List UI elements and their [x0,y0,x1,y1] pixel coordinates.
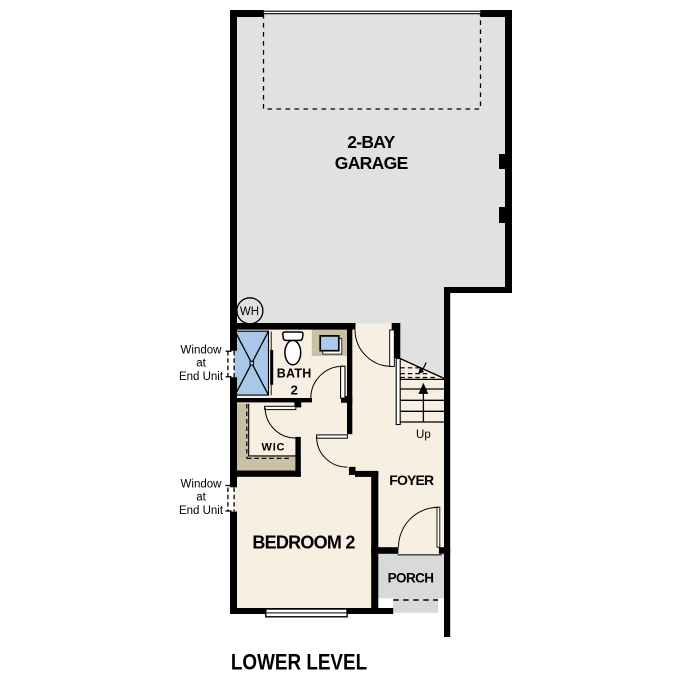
svg-text:GARAGE: GARAGE [335,153,409,173]
svg-text:at: at [196,358,206,370]
svg-text:at: at [196,492,206,504]
svg-text:End Unit: End Unit [179,505,224,517]
svg-text:WH: WH [240,306,259,318]
svg-text:FOYER: FOYER [389,472,434,488]
svg-text:End Unit: End Unit [179,371,224,383]
svg-text:2-BAY: 2-BAY [347,132,395,152]
svg-text:Window: Window [181,478,223,490]
svg-text:LOWER LEVEL: LOWER LEVEL [231,650,367,675]
svg-text:BEDROOM 2: BEDROOM 2 [252,532,355,552]
svg-text:BATH: BATH [277,367,312,381]
svg-text:Window: Window [181,345,223,357]
svg-text:WIC: WIC [262,441,285,453]
svg-text:Up: Up [416,429,431,441]
svg-text:PORCH: PORCH [388,570,434,585]
svg-text:2: 2 [291,382,298,397]
